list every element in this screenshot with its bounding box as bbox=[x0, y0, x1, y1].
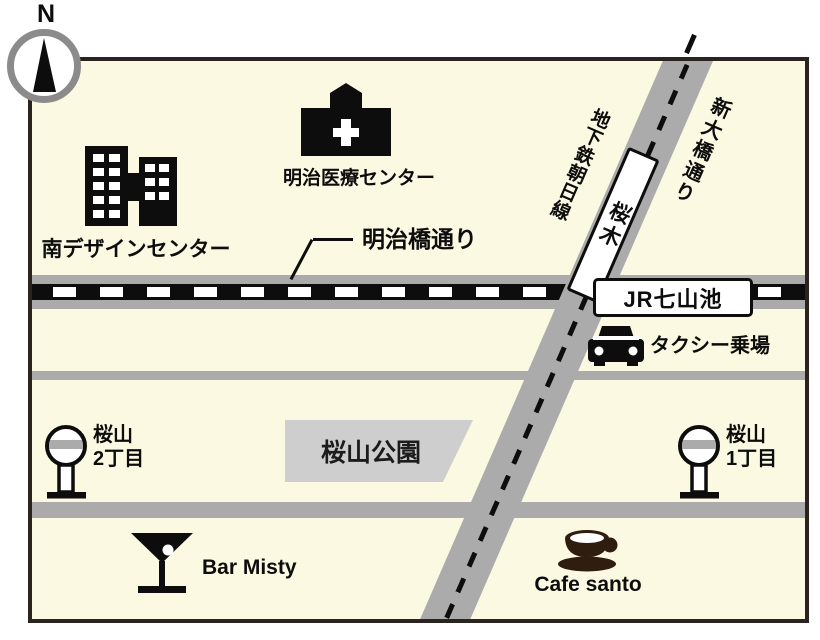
callout-line-diagonal bbox=[290, 239, 314, 280]
bar-misty-label: Bar Misty bbox=[202, 556, 297, 580]
bus-stop-icon bbox=[45, 425, 89, 500]
bus-stop-icon bbox=[678, 425, 722, 500]
medical-center-label: 明治医療センター bbox=[279, 163, 439, 190]
compass-north-label: N bbox=[28, 0, 64, 29]
design-center-label: 南デザインセンター bbox=[32, 233, 240, 263]
hospital-icon bbox=[301, 82, 391, 158]
meijibashi-street-name: 明治橋通り bbox=[362, 220, 477, 254]
compass-icon bbox=[7, 29, 81, 103]
compass-needle-icon bbox=[14, 36, 74, 96]
bus-stop-1chome-label: 桜山 1丁目 bbox=[726, 423, 777, 471]
callout-line-horizontal bbox=[313, 238, 353, 241]
sakurayama-park-area: 桜山公園 bbox=[285, 420, 473, 482]
office-building-icon bbox=[85, 146, 177, 228]
coffee-cup-icon bbox=[556, 528, 620, 575]
bus-stop-2chome-label: 桜山 2丁目 bbox=[93, 423, 144, 471]
taxi-stand-label: タクシー乗場 bbox=[650, 329, 770, 358]
park-label: 桜山公園 bbox=[321, 433, 421, 469]
subway-dash-tip bbox=[684, 34, 697, 54]
middle-road bbox=[32, 371, 805, 380]
lower-road bbox=[32, 502, 805, 518]
cafe-santo-label: Cafe santo bbox=[532, 573, 644, 597]
taxi-icon bbox=[588, 324, 644, 366]
map-clip-area: 桜山公園 桜木 地下鉄朝日線 新大橋通り JR七山池 bbox=[32, 61, 805, 619]
jr-nanayamaike-station: JR七山池 bbox=[593, 278, 753, 317]
cocktail-glass-icon bbox=[131, 533, 193, 594]
map-screenshot: 桜山公園 桜木 地下鉄朝日線 新大橋通り JR七山池 bbox=[0, 0, 820, 640]
map-canvas: 桜山公園 桜木 地下鉄朝日線 新大橋通り JR七山池 bbox=[28, 57, 809, 623]
